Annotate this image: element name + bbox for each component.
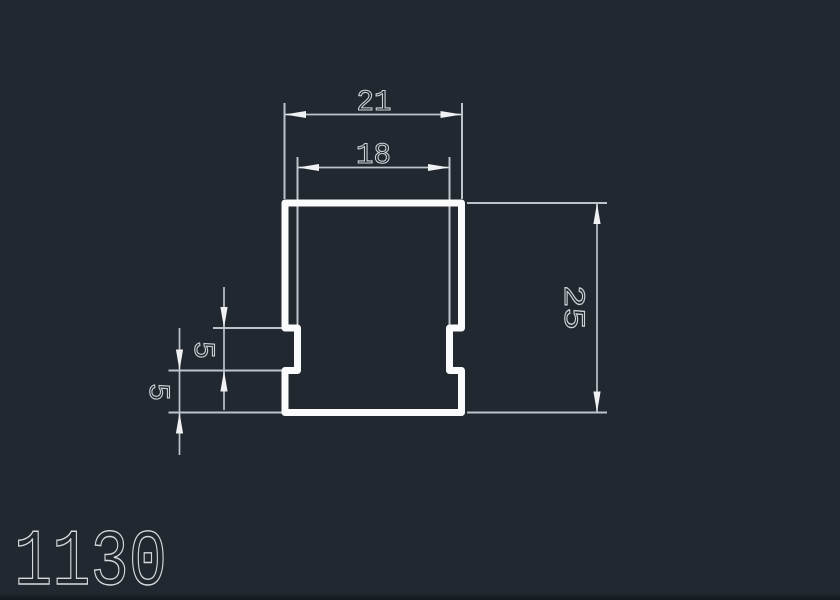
dimension-label: 5 xyxy=(140,383,174,401)
profile-outline[interactable] xyxy=(285,203,462,413)
dimension-label: 18 xyxy=(356,139,391,173)
cad-viewport[interactable]: 21 18 25 5 xyxy=(0,0,840,600)
dimension-label: 5 xyxy=(185,341,219,359)
arrowhead-down-icon xyxy=(593,392,600,413)
arrowhead-up-icon xyxy=(220,371,227,392)
dimension-inner-width[interactable]: 18 xyxy=(298,139,450,328)
arrowhead-down-icon xyxy=(220,307,227,328)
arrowhead-up-icon xyxy=(176,413,183,434)
arrowhead-down-icon xyxy=(176,350,183,371)
arrowhead-left-icon xyxy=(285,111,307,118)
dimension-notch-height[interactable]: 5 xyxy=(169,287,296,410)
arrowhead-right-icon xyxy=(441,111,463,118)
part-number-label[interactable]: 1130 xyxy=(14,518,167,600)
drawing-canvas[interactable]: 21 18 25 5 xyxy=(0,0,840,600)
canvas-edge-shadow xyxy=(0,593,840,600)
dimension-overall-height[interactable]: 25 xyxy=(467,203,607,413)
arrowhead-right-icon xyxy=(428,164,450,171)
dimension-label: 21 xyxy=(357,86,392,120)
arrowhead-left-icon xyxy=(298,164,320,171)
arrowhead-up-icon xyxy=(593,203,600,224)
dimension-label: 25 xyxy=(555,285,589,330)
